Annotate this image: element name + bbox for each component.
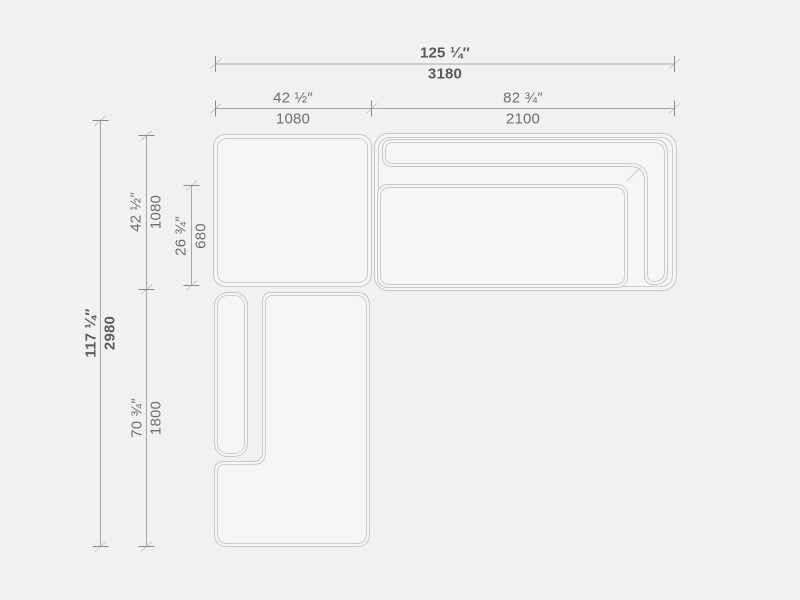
dim-overall-depth-mm: 2980 bbox=[103, 316, 118, 350]
left-module-outline bbox=[214, 135, 372, 287]
dim-seat-depth-mm: 680 bbox=[194, 223, 209, 249]
dim-seat-depth-inches: 26 ¾″ bbox=[174, 216, 189, 256]
technical-drawing-canvas: 125 ¼″ 3180 42 ½″ 1080 82 ¾″ 2100 117 ¼″… bbox=[0, 0, 800, 600]
dim-chaise-length-mm: 1800 bbox=[149, 401, 164, 435]
dimension-ticks bbox=[93, 56, 681, 552]
sofa-drawing-svg bbox=[0, 0, 800, 600]
sofa-modules bbox=[214, 134, 677, 547]
right-seat-cushion bbox=[378, 185, 628, 288]
dim-chaise-length-inches: 70 ¾″ bbox=[130, 398, 145, 438]
dim-overall-depth-inches: 117 ¼″ bbox=[84, 308, 99, 357]
chaise-armrest-cushion bbox=[215, 293, 248, 457]
dim-left-module-width-mm: 1080 bbox=[276, 112, 310, 127]
dim-right-module-width-inches: 82 ¾″ bbox=[503, 91, 543, 106]
dim-overall-width-inches: 125 ¼″ bbox=[420, 46, 470, 61]
dim-top-module-depth-mm: 1080 bbox=[149, 195, 164, 229]
dim-top-module-depth-inches: 42 ½″ bbox=[129, 192, 144, 232]
dim-right-module-width-mm: 2100 bbox=[506, 112, 540, 127]
dim-overall-width-mm: 3180 bbox=[428, 67, 462, 82]
dim-left-module-width-inches: 42 ½″ bbox=[273, 91, 313, 106]
